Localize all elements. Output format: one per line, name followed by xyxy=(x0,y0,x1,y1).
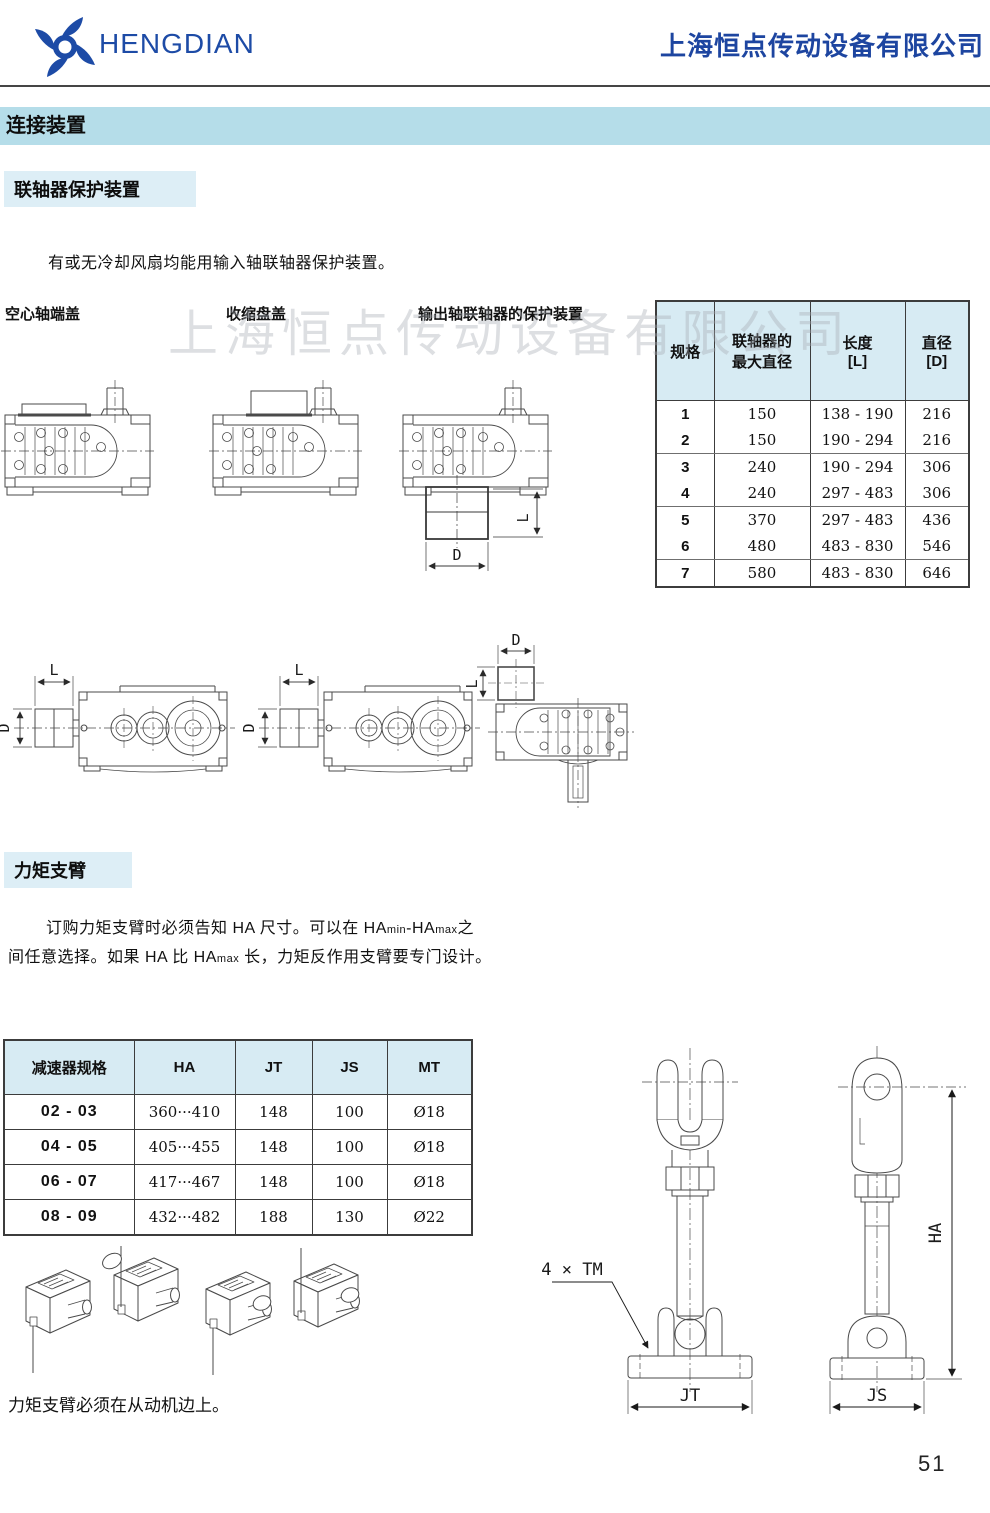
label-output-protection: 输出轴联轴器的保护装置 xyxy=(418,303,583,324)
table-row: 3240190 - 294306 xyxy=(656,454,969,481)
torque-section-title: 力矩支臂 xyxy=(4,852,132,888)
catalog-page: HENGDIAN 上海恒点传动设备有限公司 连接装置 联轴器保护装置 有或无冷却… xyxy=(0,0,990,1513)
torque-arm-mounting-sketches xyxy=(0,1243,500,1393)
dim-label-l: L xyxy=(294,661,303,679)
table-header-row: 减速器规格 HA JT JS MT xyxy=(4,1040,472,1095)
label-shrink-disc-cover: 收缩盘盖 xyxy=(226,303,286,324)
table-row: 4240297 - 483306 xyxy=(656,480,969,507)
header-divider xyxy=(0,85,990,87)
hengdian-logo-icon xyxy=(33,13,97,81)
hollow-shaft-end-cover xyxy=(18,404,91,415)
gearbox-side-views-drawing: L D L D D xyxy=(0,628,660,843)
torque-arm-front-view xyxy=(552,1048,752,1414)
gearbox-top-view xyxy=(477,645,634,808)
dim-label-4xtm: 4 × TM xyxy=(541,1260,602,1280)
table-row: 06 - 07417···467148100Ø18 xyxy=(4,1165,472,1200)
coupling-table: 规格 联轴器的 最大直径 长度 [L] 直径 [D] 1150138 - 190… xyxy=(655,300,970,588)
dim-label-d: D xyxy=(511,631,520,649)
torque-intro-text: 订购力矩支臂时必须告知 HA 尺寸。可以在 HAmin-HAmax之 间任意选择… xyxy=(8,915,548,973)
dim-label-d: D xyxy=(452,546,461,564)
col-spec: 规格 xyxy=(656,301,714,401)
col-mt: MT xyxy=(387,1040,472,1095)
table-row: 1150138 - 190216 xyxy=(656,401,969,428)
table-row: 04 - 05405···455148100Ø18 xyxy=(4,1130,472,1165)
shrink-disc-cover xyxy=(246,391,312,415)
coupling-intro-text: 有或无冷却风扇均能用输入轴联轴器保护装置。 xyxy=(48,249,395,273)
dim-label-l: L xyxy=(463,679,481,688)
coupling-section-title: 联轴器保护装置 xyxy=(4,171,196,207)
col-gear-spec: 减速器规格 xyxy=(4,1040,134,1095)
dim-label-jt: JT xyxy=(680,1386,700,1406)
table-row: 5370297 - 483436 xyxy=(656,507,969,534)
dim-label-ha: HA xyxy=(926,1223,946,1243)
mounting-note: 力矩支臂必须在从动机边上。 xyxy=(8,1391,229,1416)
logo-text: HENGDIAN xyxy=(99,28,255,60)
dim-label-d: D xyxy=(240,723,258,732)
table-header-row: 规格 联轴器的 最大直径 长度 [L] 直径 [D] xyxy=(656,301,969,401)
torque-intro-line1: 订购力矩支臂时必须告知 HA 尺寸。可以在 HAmin-HAmax之 xyxy=(8,915,548,944)
table-row: 6480483 - 830546 xyxy=(656,533,969,560)
dim-label-d: D xyxy=(0,723,13,732)
company-name: 上海恒点传动设备有限公司 xyxy=(660,26,984,63)
page-number: 51 xyxy=(918,1451,946,1477)
dim-label-l: L xyxy=(49,661,58,679)
col-ha: HA xyxy=(134,1040,235,1095)
gearbox-front-views-drawing: L D xyxy=(0,375,660,610)
table-row: 08 - 09432···482188130Ø22 xyxy=(4,1200,472,1236)
torque-arm-drawing: 4 × TM JT JS HA xyxy=(500,1020,990,1420)
torque-intro-line2: 间任意选择。如果 HA 比 HAmax 长，力矩反作用支臂要专门设计。 xyxy=(8,944,548,973)
label-hollow-shaft-cover: 空心轴端盖 xyxy=(5,303,80,324)
col-diam: 联轴器的 最大直径 xyxy=(714,301,810,401)
table-row: 7580483 - 830646 xyxy=(656,560,969,588)
table-row: 2150190 - 294216 xyxy=(656,427,969,454)
dim-label-l: L xyxy=(514,513,532,522)
dim-label-js: JS xyxy=(867,1386,887,1406)
col-d: 直径 [D] xyxy=(905,301,969,401)
col-jt: JT xyxy=(235,1040,312,1095)
col-len: 长度 [L] xyxy=(810,301,905,401)
section-banner: 连接装置 xyxy=(0,107,990,145)
torque-arm-table: 减速器规格 HA JT JS MT 02 - 03360···410148100… xyxy=(3,1039,473,1236)
table-row: 02 - 03360···410148100Ø18 xyxy=(4,1095,472,1130)
col-js: JS xyxy=(312,1040,387,1095)
